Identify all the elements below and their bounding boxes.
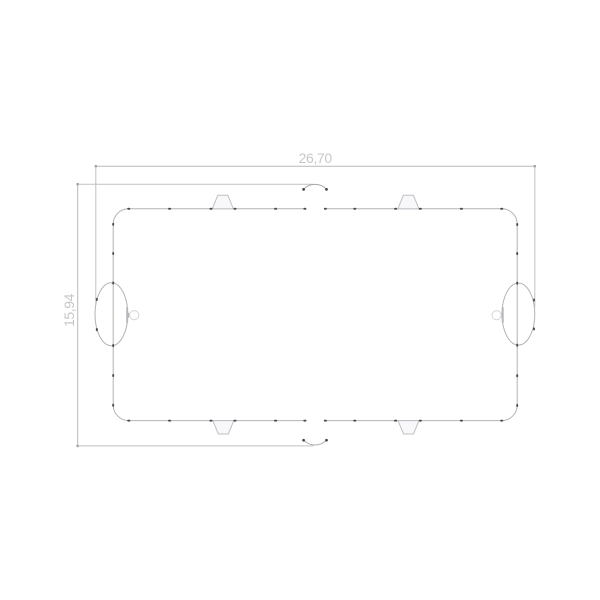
svg-text:26,70: 26,70 xyxy=(299,150,333,166)
svg-text:15,94: 15,94 xyxy=(61,293,77,327)
